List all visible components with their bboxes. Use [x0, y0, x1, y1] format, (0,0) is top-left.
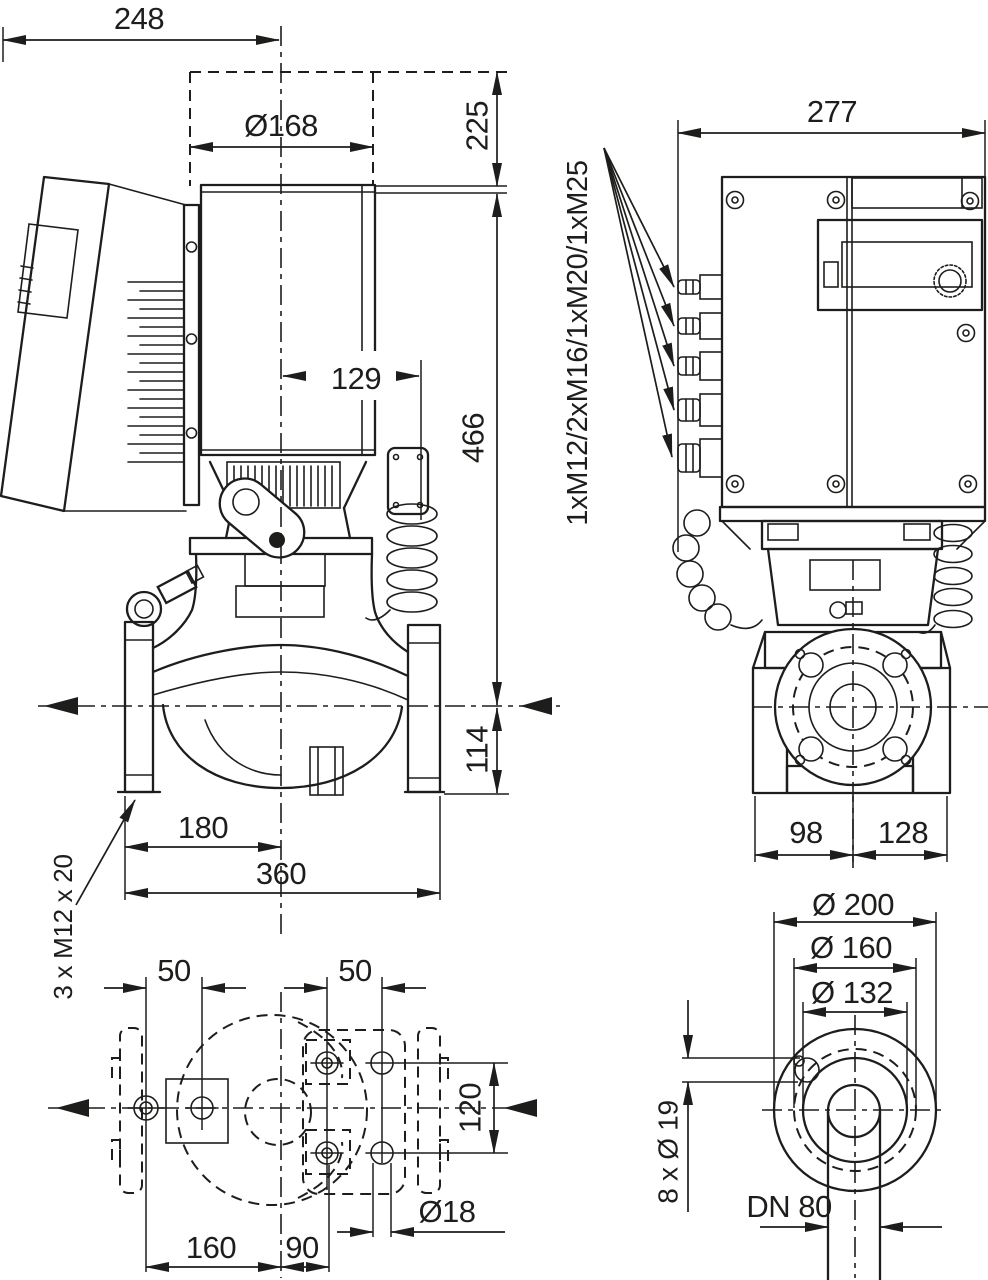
- dim-129: 129: [331, 361, 381, 396]
- air-vent-valve: [830, 602, 846, 618]
- dim-466: 466: [456, 413, 491, 463]
- dim-360: 360: [256, 856, 306, 891]
- dim-dia160: Ø 160: [810, 930, 892, 965]
- technical-drawing-page: 248 Ø168 225 466 114 129 180 360 3 x M: [0, 0, 988, 1280]
- dim-277: 277: [807, 94, 857, 129]
- note-cable-glands: 1xM12/2xM16/1xM20/1xM25: [562, 160, 594, 525]
- dim-50-left: 50: [157, 953, 191, 988]
- module-bracket: [184, 205, 199, 505]
- note-bolt-holes: 8 x Ø 19: [653, 1100, 684, 1203]
- dim-dia200: Ø 200: [812, 887, 894, 922]
- flange-detail-view: [762, 1015, 947, 1280]
- dim-90: 90: [285, 1230, 319, 1265]
- gauge-port-left: [127, 565, 203, 626]
- side-view-dimensions: 248 Ø168 225 466 114 129 180 360 3 x M: [3, 1, 560, 1000]
- front-view-dimensions: 277 1xM12/2xM16/1xM20/1xM25 98 128: [562, 94, 985, 862]
- bore-circle: [828, 1085, 880, 1137]
- dim-114: 114: [460, 726, 495, 774]
- dim-98: 98: [789, 815, 822, 850]
- coiled-cable-right: [366, 504, 437, 620]
- dim-dia132: Ø 132: [811, 975, 893, 1010]
- flange-right-hidden: [418, 1028, 440, 1193]
- dim-dia18: Ø18: [418, 1194, 475, 1229]
- flow-arrow-icon: [56, 1099, 89, 1117]
- flange-left-hidden: [120, 1028, 142, 1193]
- dim-120: 120: [453, 1083, 488, 1133]
- terminal-box: [722, 177, 985, 507]
- flow-arrow-icon: [44, 697, 78, 715]
- note-anchor-bolts: 3 x M12 x 20: [48, 854, 78, 999]
- dim-160: 160: [186, 1230, 236, 1265]
- dim-248: 248: [114, 1, 164, 36]
- flow-arrow-icon: [504, 1099, 537, 1117]
- coiled-cable-left: [673, 510, 762, 630]
- dim-180: 180: [178, 810, 228, 845]
- plan-view-dimensions: 50 50 120 Ø18 160 90: [104, 953, 508, 1272]
- motor-body: [201, 185, 375, 455]
- flow-arrow-icon: [520, 697, 552, 715]
- dim-50-right: 50: [338, 953, 372, 988]
- volute-footprint: [177, 1015, 367, 1205]
- cable-glands: [678, 275, 722, 477]
- pump-front-view: [673, 177, 988, 868]
- dim-128: 128: [878, 815, 928, 850]
- dim-225: 225: [460, 101, 495, 151]
- heatsink-fins: [128, 282, 184, 462]
- bolt-hole: [795, 1058, 819, 1082]
- dim-dia168: Ø168: [244, 108, 318, 143]
- label-dn80: DN 80: [746, 1189, 832, 1224]
